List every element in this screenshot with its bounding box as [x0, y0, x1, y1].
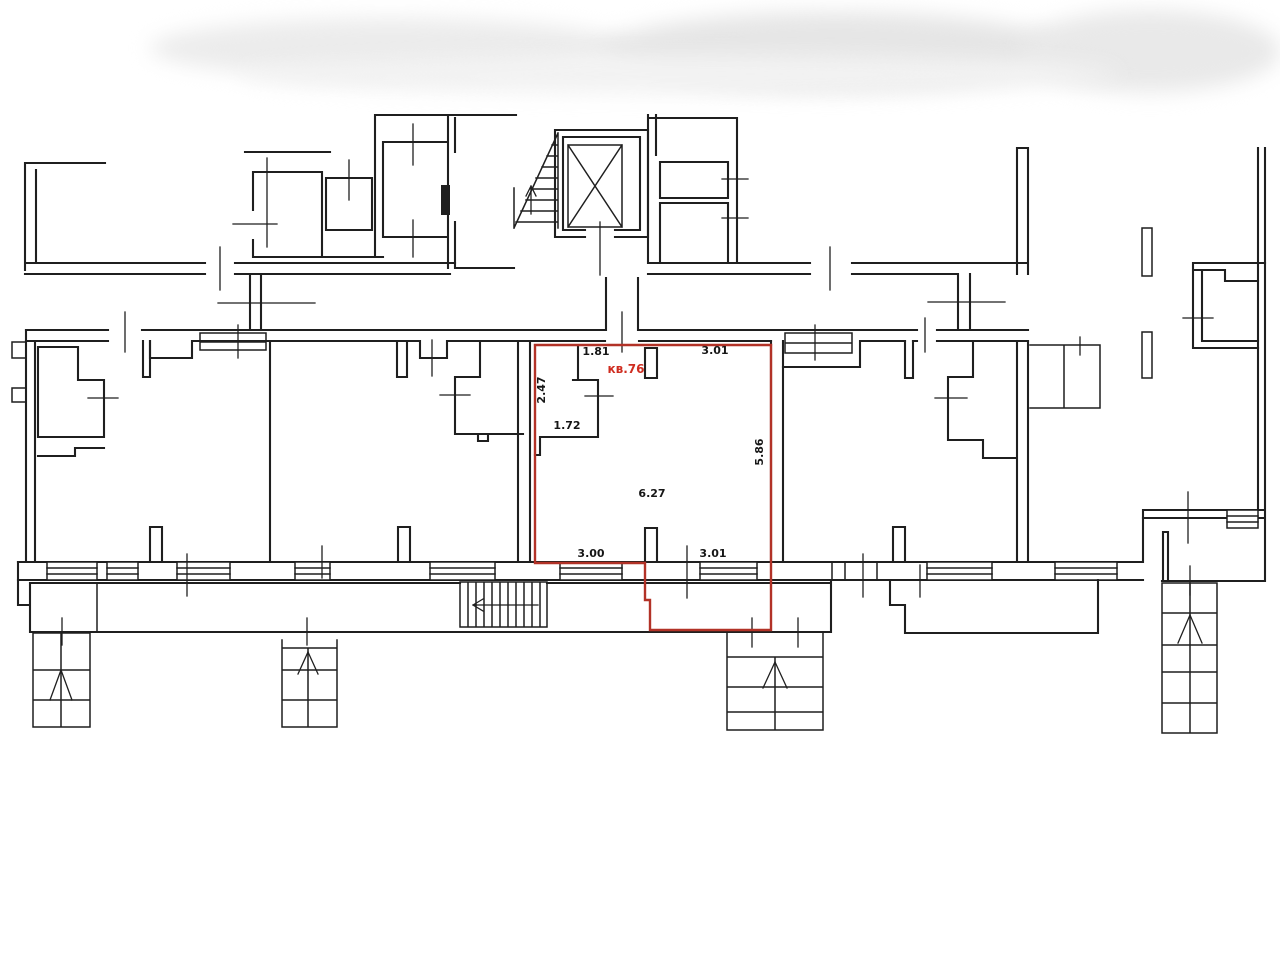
- shaft-hatch: [441, 185, 450, 215]
- corridor-walls: [25, 163, 455, 330]
- top-utility-rooms: [233, 115, 516, 268]
- entrance-stair-right-icon: [1162, 566, 1217, 733]
- entrance-stair-center-icon: [727, 618, 823, 730]
- staircase-icon: [514, 133, 558, 228]
- dim-room-width: 6.27: [638, 487, 665, 500]
- apartment-4: [771, 337, 1100, 562]
- dim-right-side: 5.86: [753, 438, 766, 465]
- apartment-row-top-wall: [26, 312, 1028, 376]
- top-right-rooms: [648, 115, 1028, 330]
- dim-closet: 1.72: [553, 419, 580, 432]
- entrance-ramp-icon: [460, 582, 547, 627]
- entrance-stair-left-icon: [33, 633, 90, 727]
- entrance-stair-mid-icon: [282, 618, 337, 727]
- window-icon: [47, 562, 1117, 580]
- pillar-icon: [1142, 228, 1152, 378]
- apartment-kv76-interior: [535, 345, 771, 598]
- elevator-icon: [555, 130, 648, 330]
- unit-number-label: кв.76: [608, 362, 645, 376]
- dim-left-side: 2.47: [535, 376, 548, 403]
- dim-top-right: 3.01: [701, 344, 728, 357]
- dim-bottom-right: 3.01: [699, 547, 726, 560]
- apartment-2: [397, 341, 530, 562]
- apartment-1: [12, 330, 270, 562]
- floor-plan-canvas: кв.76 1.81 3.01 2.47 1.72 5.86 6.27 3.00…: [0, 0, 1280, 960]
- dim-bottom-left: 3.00: [577, 547, 604, 560]
- right-wing: [1142, 148, 1265, 733]
- dim-top-left: 1.81: [582, 345, 609, 358]
- floor-plan-drawing: кв.76 1.81 3.01 2.47 1.72 5.86 6.27 3.00…: [0, 0, 1280, 960]
